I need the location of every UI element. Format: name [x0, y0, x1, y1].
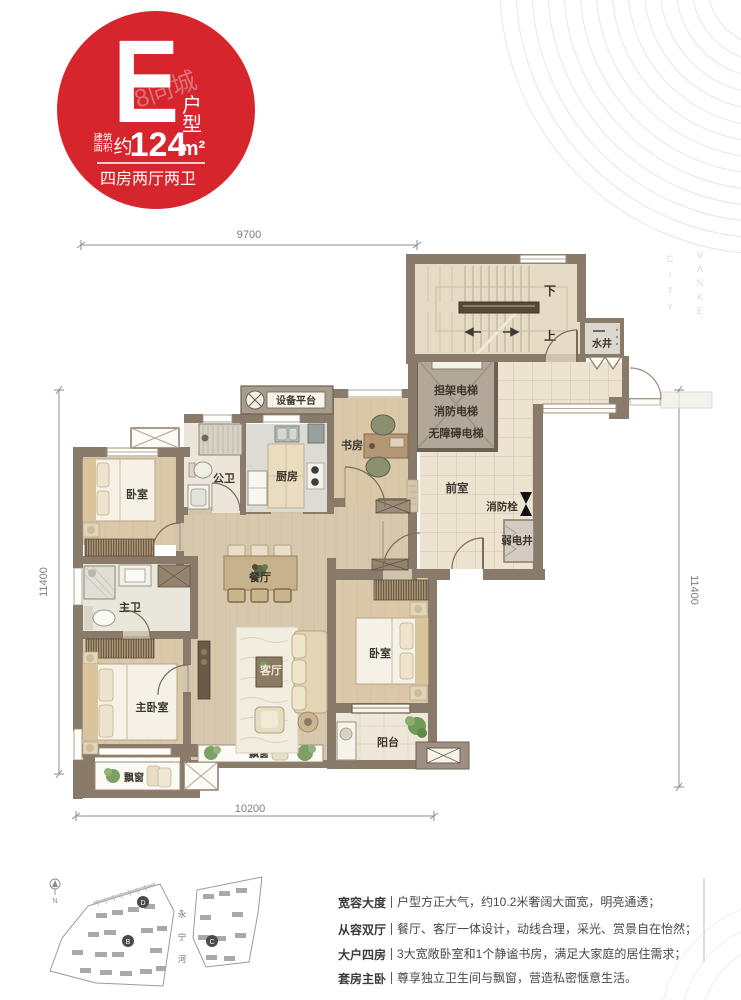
svg-text:下: 下 — [544, 284, 556, 298]
svg-text:I: I — [669, 270, 672, 280]
svg-text:主卫: 主卫 — [119, 600, 141, 614]
svg-text:3大宽敞卧室和1个静谧书房，满足大家庭的居住需求；: 3大宽敞卧室和1个静谧书房，满足大家庭的居住需求； — [397, 946, 686, 961]
svg-text:Y: Y — [667, 302, 673, 312]
svg-text:面积: 面积 — [93, 142, 113, 154]
svg-text:尊享独立卫生间与飘窗，营造私密惬意生活。: 尊享独立卫生间与飘窗，营造私密惬意生活。 — [397, 970, 637, 985]
svg-text:E: E — [697, 306, 703, 316]
svg-text:T: T — [667, 286, 673, 296]
svg-text:宽容大度: 宽容大度 — [337, 895, 387, 910]
svg-text:上: 上 — [544, 328, 556, 343]
svg-text:从容双厅: 从容双厅 — [338, 922, 386, 937]
svg-text:卧室: 卧室 — [126, 487, 148, 501]
svg-text:D: D — [140, 900, 145, 907]
svg-text:N: N — [697, 278, 704, 288]
svg-text:C: C — [209, 939, 214, 946]
svg-text:餐厅: 餐厅 — [248, 570, 271, 584]
svg-text:卧室: 卧室 — [369, 646, 391, 660]
svg-text:户型方正大气，约10.2米奢阔大面宽，明亮通透；: 户型方正大气，约10.2米奢阔大面宽，明亮通透； — [397, 894, 660, 909]
svg-text:B: B — [126, 939, 131, 946]
svg-text:124: 124 — [130, 126, 187, 164]
svg-text:套房主卧: 套房主卧 — [337, 971, 386, 986]
svg-text:9700: 9700 — [237, 229, 261, 241]
svg-text:V: V — [697, 250, 703, 260]
svg-text:C: C — [667, 254, 674, 264]
svg-text:河: 河 — [178, 954, 187, 964]
svg-text:主卧室: 主卧室 — [136, 700, 169, 714]
svg-text:阳台: 阳台 — [377, 735, 399, 749]
svg-text:K: K — [697, 292, 703, 302]
svg-text:弱电井: 弱电井 — [501, 534, 533, 547]
svg-text:餐厅、客厅一体设计，动线合理，采光、赏景自在怡然；: 餐厅、客厅一体设计，动线合理，采光、赏景自在怡然； — [397, 921, 697, 936]
svg-text:无障碍电梯: 无障碍电梯 — [428, 426, 484, 440]
svg-text:m²: m² — [181, 138, 206, 160]
svg-text:11400: 11400 — [38, 567, 50, 597]
svg-text:客厅: 客厅 — [259, 663, 282, 677]
svg-text:11400: 11400 — [688, 575, 700, 605]
svg-text:飘窗: 飘窗 — [124, 771, 144, 784]
svg-text:厨房: 厨房 — [276, 469, 298, 483]
svg-text:书房: 书房 — [341, 438, 363, 452]
svg-text:消防电梯: 消防电梯 — [434, 404, 478, 418]
svg-text:大户四房: 大户四房 — [338, 947, 386, 962]
svg-text:设备平台: 设备平台 — [276, 394, 316, 407]
svg-text:永: 永 — [178, 909, 187, 919]
svg-text:担架电梯: 担架电梯 — [434, 383, 478, 397]
svg-text:四房两厅两卫: 四房两厅两卫 — [100, 170, 196, 188]
svg-text:消防栓: 消防栓 — [486, 500, 518, 513]
svg-text:前室: 前室 — [446, 481, 469, 495]
svg-text:A: A — [697, 264, 703, 274]
svg-text:水井: 水井 — [591, 337, 612, 350]
svg-text:宁: 宁 — [178, 932, 187, 942]
svg-text:10200: 10200 — [235, 803, 266, 815]
svg-text:N: N — [52, 898, 57, 905]
